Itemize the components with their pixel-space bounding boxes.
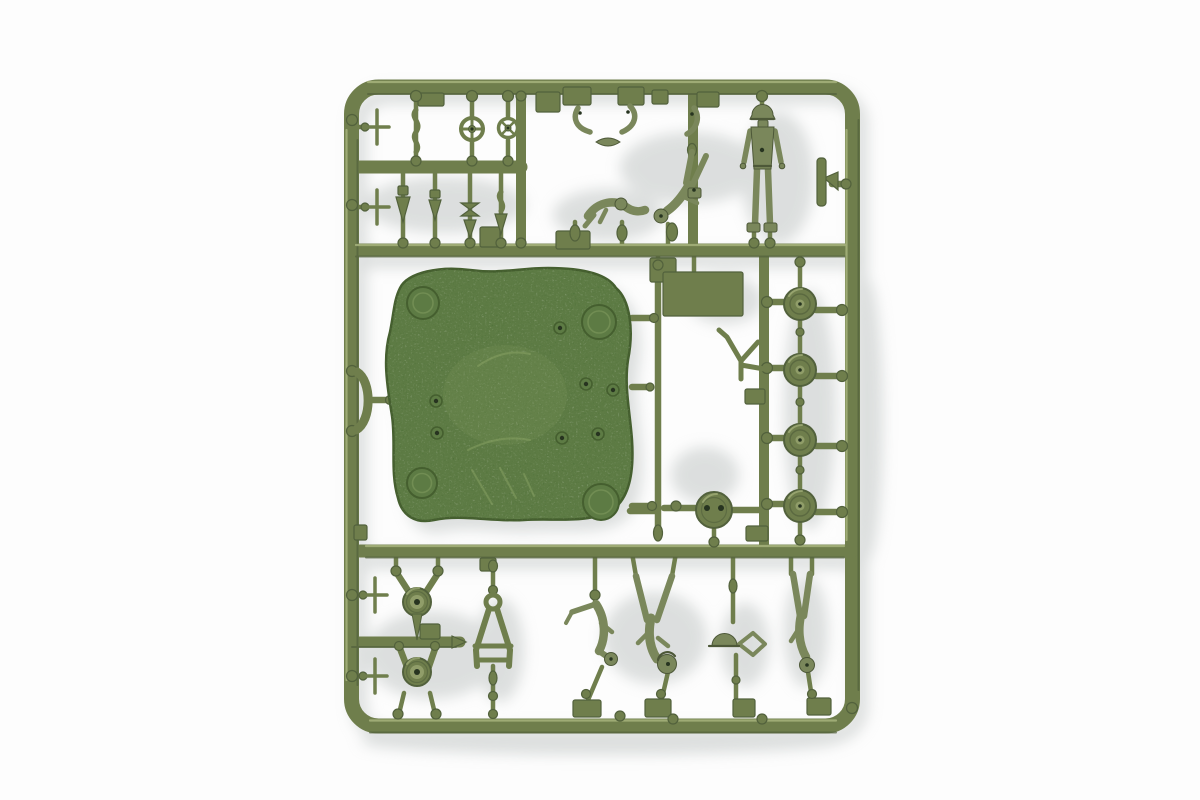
base-plate: large pebble-textured base plate with fo… [386, 268, 632, 521]
photo-stage: rectangular sprue frame with rounded cor… [0, 0, 1200, 800]
plate-sheen [443, 345, 567, 445]
hatch-disk: round hatch disk with two holes [696, 492, 732, 528]
shadow-blob [603, 592, 707, 684]
flag-panel [663, 272, 743, 316]
crawling-figure-head [615, 198, 627, 210]
blade-part [817, 158, 826, 206]
sprue-photo: rectangular sprue frame with rounded cor… [0, 0, 1200, 800]
